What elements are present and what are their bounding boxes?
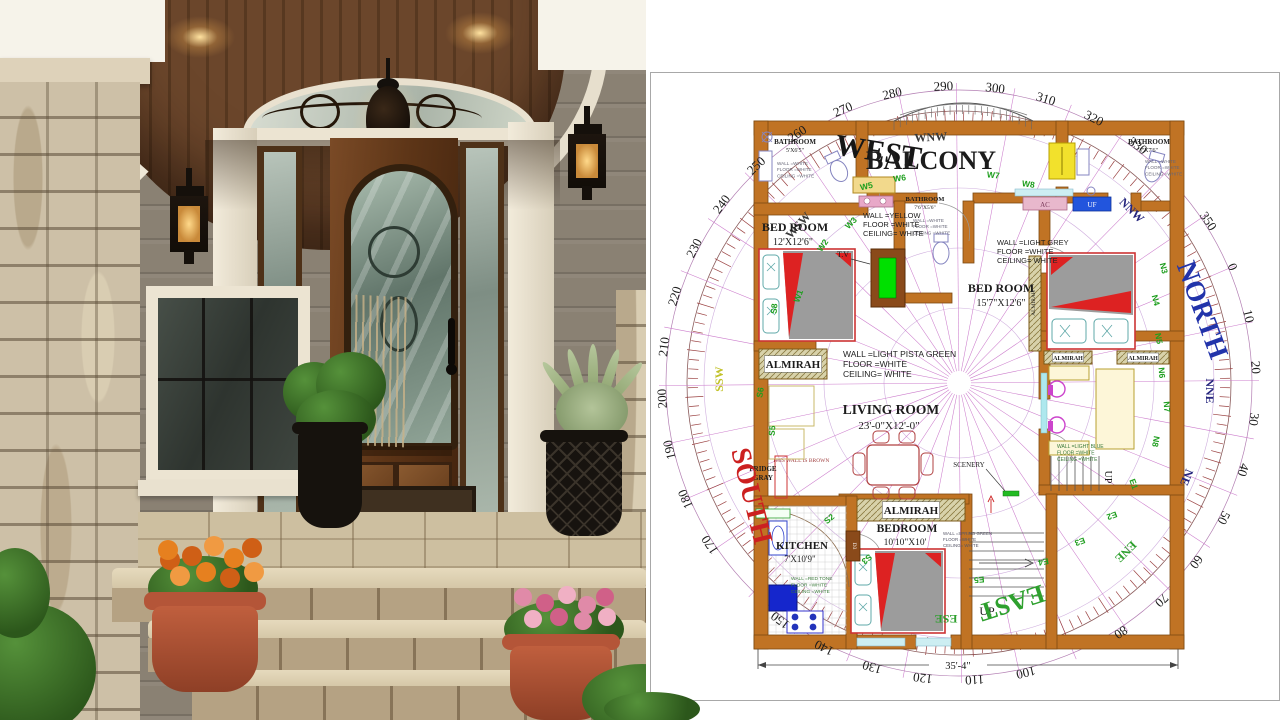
- room-finish-bathroom-top-right: CEILING =WHITE: [1145, 171, 1182, 176]
- room-dims-bathroom-top-right: 7'X7'6": [1140, 148, 1158, 154]
- compass-tick: [697, 451, 707, 454]
- compass-tick: [700, 459, 710, 462]
- code-label-n8: N8: [1150, 435, 1162, 448]
- compass-tick: [722, 510, 731, 515]
- room-finish-study: FLOOR =WHITE: [1057, 451, 1095, 457]
- room-name-bathroom-top-right: BATHROOM: [1128, 138, 1170, 146]
- compass-tick: [713, 493, 722, 497]
- pillow: [1052, 319, 1086, 343]
- compass-degree-180: 180: [674, 487, 695, 511]
- room-finish-bathroom-top-left: WALL =WHITE: [777, 161, 808, 166]
- compass-degree-0: 0: [1225, 261, 1241, 273]
- room-finish-bed-room-left: FLOOR =WHITE: [863, 220, 919, 229]
- compass-tick: [693, 433, 703, 435]
- dimension-label: 35'-4": [945, 661, 970, 672]
- compass-degree-200: 200: [654, 388, 670, 408]
- compass-tick: [1187, 510, 1196, 515]
- compass-tick: [685, 396, 703, 397]
- compass-dir-ese: ESE: [935, 612, 958, 626]
- room-finish-study: CEILING =WHITE: [1057, 457, 1098, 463]
- room-finish-bathroom-top-right: FLOOR =WHITE: [1145, 165, 1180, 170]
- compass-tick: [1196, 493, 1205, 497]
- room-finish-living-room: CEILING= WHITE: [843, 369, 912, 379]
- wall: [1039, 429, 1050, 494]
- lantern-finial: [184, 250, 194, 264]
- dim-arrow: [758, 662, 766, 668]
- compass-degree-210: 210: [655, 336, 672, 357]
- wall-lantern-right-icon: [568, 134, 606, 188]
- window-strip: [1015, 189, 1073, 196]
- compass-tick: [689, 406, 699, 407]
- compass-tick: [740, 218, 754, 229]
- tv-screen: [879, 258, 896, 298]
- compass-tick: [1187, 252, 1196, 257]
- bath-sink: [1077, 149, 1089, 175]
- screenshot-root: ALMIRAHALMIRAHALMIRAHALMIRAHALMIRAHT.VFR…: [0, 0, 1280, 720]
- compass-tick: [1213, 442, 1223, 444]
- orange-flowers: [158, 540, 178, 560]
- compass-tick: [691, 424, 701, 426]
- compass-degree-240: 240: [710, 192, 734, 217]
- compass-tick: [722, 252, 731, 257]
- compass-tick: [703, 468, 712, 471]
- stove-burner: [810, 624, 817, 631]
- wall: [963, 201, 974, 263]
- compass-dir-nne: NNE: [1203, 378, 1217, 403]
- compass-tick: [692, 441, 710, 445]
- room-dims-kitchen: 7'X10'9": [784, 554, 816, 564]
- room-finish-kitchen: FLOOR =WHITE: [791, 582, 827, 588]
- code-label-n6: N6: [1157, 367, 1168, 379]
- pink-flowers: [514, 588, 532, 606]
- room-finish-bedroom-bottom: CEILING= WHITE: [943, 543, 979, 548]
- wall: [1139, 201, 1170, 211]
- compass-degree-170: 170: [698, 533, 721, 558]
- compass-degree-60: 60: [1187, 552, 1207, 571]
- room-finish-bed-room-left: CEILING= WHITE: [863, 229, 924, 238]
- compass-tick: [1215, 369, 1233, 370]
- room-name-bed-room-right: BED ROOM: [968, 281, 1034, 295]
- almirah-label: ALMIRAH: [1128, 356, 1158, 362]
- compass-tick: [713, 268, 722, 272]
- lantern-finial: [582, 186, 592, 200]
- recessed-light-icon: [165, 16, 235, 58]
- compass-degree-20: 20: [1248, 361, 1264, 375]
- compass-tick: [703, 295, 712, 298]
- iron-scroll-ring-icon: [300, 94, 340, 130]
- room-dims-bed-room-right: 15'7"X12'6": [977, 298, 1026, 309]
- stove-burner: [810, 614, 817, 621]
- door-d3-label: D3: [851, 543, 857, 550]
- compass-tick: [691, 341, 701, 343]
- office-chair-back: [1048, 385, 1053, 395]
- compass-degree-110: 110: [965, 672, 985, 688]
- compass-tick: [727, 517, 736, 522]
- code-label-w6: W6: [893, 172, 907, 184]
- floor-plan-svg: ALMIRAHALMIRAHALMIRAHALMIRAHALMIRAHT.VFR…: [651, 73, 1279, 700]
- office-chair-back: [1048, 421, 1053, 431]
- compass-degree-10: 10: [1240, 308, 1258, 324]
- scenery-item: [1003, 491, 1019, 496]
- study-window-strip: [1041, 373, 1047, 433]
- compass-degree-50: 50: [1214, 509, 1233, 527]
- compass-tick: [690, 415, 700, 416]
- pillow: [855, 595, 871, 625]
- room-finish-bed-room-right: CEILING= WHITE: [997, 256, 1058, 265]
- room-dims-bathroom-top-left: 5'X6'5": [786, 148, 804, 154]
- sidelight-right-glass: [466, 148, 498, 512]
- terracotta-pot-left: [152, 606, 258, 692]
- room-name-bathroom-top-left: BATHROOM: [774, 138, 816, 146]
- room-finish-bathroom-top-left: CEILING =WHITE: [777, 173, 814, 178]
- compass-tick: [695, 322, 705, 324]
- eave-corner-left: [0, 0, 165, 62]
- compass-tick: [1217, 424, 1227, 426]
- door-deadbolt: [446, 364, 457, 375]
- compass-tick: [1219, 359, 1229, 360]
- window-sill: [138, 480, 318, 496]
- room-finish-kitchen: CEILING =WHITE: [791, 589, 830, 595]
- compass-tick: [1187, 499, 1203, 507]
- toilet-icon: [933, 234, 949, 264]
- code-label-w8: W8: [1021, 178, 1035, 190]
- room-dims-living-room: 23'-0"X12'-0": [858, 420, 919, 432]
- compass-tick: [688, 369, 698, 370]
- room-name-living-room: LIVING ROOM: [843, 402, 940, 417]
- room-name-kitchen: KITCHEN: [776, 540, 828, 552]
- side-window-glass: [158, 298, 298, 470]
- compass-tick: [697, 303, 714, 308]
- room-name-balcony: BALCONY: [866, 146, 996, 175]
- stove-burner: [792, 624, 799, 631]
- wall: [754, 203, 868, 215]
- compass-tick: [718, 501, 727, 506]
- bench-dot: [864, 198, 870, 204]
- scenery-label: SCENERY: [953, 461, 985, 469]
- eave-corner-right: [538, 0, 646, 70]
- code-label-s8: S8: [769, 303, 780, 315]
- compass-tick: [737, 228, 745, 234]
- room-name-bedroom-bottom: BEDROOM: [877, 523, 938, 535]
- code-label-n7: N7: [1162, 401, 1173, 413]
- room-name-bed-room-left: BED ROOM: [762, 220, 828, 234]
- floor-plan-panel: ALMIRAHALMIRAHALMIRAHALMIRAHALMIRAHT.VFR…: [650, 72, 1280, 701]
- compass-tick: [687, 350, 705, 352]
- uf-label: UF: [1088, 201, 1097, 209]
- room-finish-bathroom-top-left: FLOOR =WHITE: [777, 167, 812, 172]
- room-finish-bathroom-top-right: WALL =WHITE: [1145, 159, 1176, 164]
- ac-label: AC: [1040, 201, 1050, 209]
- bush-overflow: [604, 692, 700, 720]
- room-name-bathroom-middle: BATHROOM: [906, 196, 945, 203]
- door-glass-ornament-icon: [368, 226, 420, 278]
- window-strip: [857, 638, 905, 646]
- compass-tick: [1220, 397, 1230, 398]
- compass-tick: [706, 286, 715, 290]
- compass-tick: [1199, 485, 1208, 489]
- stone-pillar-cap: [0, 58, 150, 84]
- stove: [787, 611, 823, 633]
- compass-tick: [1206, 468, 1215, 471]
- room-finish-bedroom-bottom: FLOOR =WHITE: [943, 537, 976, 542]
- compass-tick: [706, 477, 715, 481]
- room-dims-bedroom-bottom: 10'10"X10': [884, 538, 927, 548]
- almirah-label: ALMIRAH: [884, 505, 939, 517]
- compass-degree-230: 230: [683, 236, 705, 260]
- urn-rim: [292, 422, 368, 434]
- stove-burner: [792, 614, 799, 621]
- wall: [754, 121, 768, 649]
- wall: [951, 635, 1184, 649]
- code-label-w7: W7: [986, 169, 1000, 180]
- recessed-light-icon: [445, 12, 515, 54]
- compass-degree-270: 270: [831, 98, 855, 119]
- room-dims-bed-room-left: 12'X12'6": [773, 237, 813, 248]
- compass-tick: [710, 277, 719, 281]
- house-entrance-photo: [0, 0, 646, 720]
- room-finish-study: WALL =LIGHT BLUE: [1057, 444, 1104, 450]
- code-label-e5: E5: [973, 575, 985, 586]
- lantern-light: [576, 144, 598, 178]
- lantern-light: [178, 206, 200, 242]
- compass-tick: [732, 235, 740, 240]
- room-finish-bed-room-right: WALL =LIGHT GREY: [997, 238, 1069, 247]
- room-finish-living-room: WALL =LIGHT PISTA GREEN: [843, 349, 956, 359]
- compass-tick: [689, 359, 699, 360]
- pillow: [1094, 319, 1128, 343]
- room-finish-kitchen: WALL =RED TONE: [791, 576, 832, 582]
- room-finish-bedroom-bottom: WALL =SPRING GREEN: [943, 531, 992, 536]
- door-handle: [448, 318, 455, 366]
- bench-dot: [880, 198, 886, 204]
- compass-tick: [1211, 451, 1221, 454]
- compass-dir-ssw: SSW: [712, 366, 726, 391]
- compass-degree-120: 120: [912, 670, 933, 687]
- compass-degree-300: 300: [985, 79, 1006, 96]
- compass-tick: [1204, 458, 1221, 463]
- code-label-s5: S5: [767, 425, 778, 437]
- room-finish-living-room: FLOOR =WHITE: [843, 359, 907, 369]
- compass-tick: [1219, 406, 1229, 407]
- pillow: [763, 255, 779, 289]
- up-label: UP: [1102, 471, 1113, 484]
- sidelight-right: [460, 142, 504, 518]
- room-finish-bed-room-left: WALL =YELLOW: [863, 211, 922, 220]
- dim-arrow: [1170, 662, 1178, 668]
- almirah-label: ALMIRAH: [766, 359, 821, 371]
- almirah-label: ALMIRAH: [1053, 356, 1083, 362]
- wall-lantern-left-icon: [170, 196, 208, 252]
- compass-degree-350: 350: [1197, 209, 1220, 234]
- compass-degree-290: 290: [933, 78, 953, 94]
- black-urn-left: [298, 428, 362, 528]
- study-desk: [1049, 366, 1089, 380]
- compass-tick: [707, 483, 724, 490]
- code-label-s6: S6: [754, 386, 766, 398]
- compass-tick: [1213, 414, 1231, 416]
- code-label-n5: N5: [1153, 332, 1165, 345]
- code-label-e4: E4: [1037, 556, 1049, 568]
- urn-rim: [540, 430, 628, 442]
- study-table: [1096, 369, 1134, 449]
- compass-degree-30: 30: [1246, 412, 1262, 427]
- wall: [1170, 121, 1184, 649]
- wall: [754, 121, 1184, 135]
- wall: [1039, 485, 1184, 495]
- compass-tick: [1203, 477, 1212, 481]
- wall: [1046, 494, 1057, 649]
- black-urn-right: [546, 436, 622, 536]
- room-finish-bed-room-right: FLOOR =WHITE: [997, 247, 1053, 256]
- window-strip: [916, 638, 951, 646]
- tv-label: T.V: [837, 250, 849, 259]
- compass-tick: [715, 259, 731, 267]
- compass-tick: [697, 313, 707, 316]
- compass-tick: [727, 243, 736, 248]
- dining-table: [867, 445, 919, 485]
